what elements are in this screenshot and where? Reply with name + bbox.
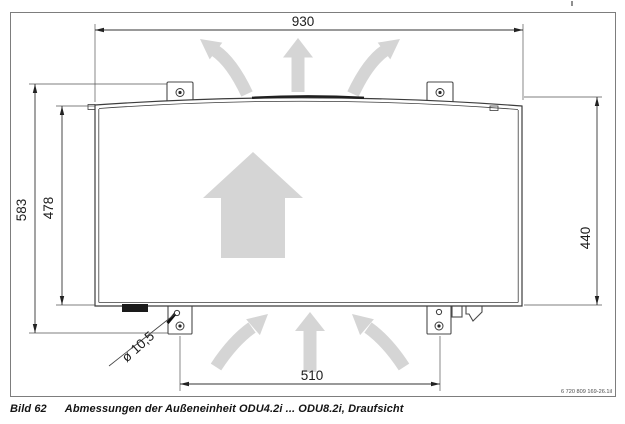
drawing-reference-number: 6 720 809 169-26.1il [561,389,612,395]
dimension-hole-diameter: ø 10,5 [109,314,175,366]
airflow-arrow-curve-right-icon [216,314,268,367]
figure-label: Bild 62 [10,403,47,415]
dimension-width-overall: 930 [95,14,523,102]
technical-drawing: 930 583 478 440 [0,0,625,400]
dim-depth-body-label: 478 [41,197,56,220]
corner-notch-left [88,105,95,110]
dim-depth-overall-label: 583 [14,199,29,222]
airflow-arrow-up-left-icon [200,39,247,94]
outdoor-unit-body [88,96,522,312]
screw-icon [436,89,444,97]
dim-width-overall-label: 930 [292,14,315,29]
figure-caption: Abmessungen der Außeneinheit ODU4.2i ...… [65,403,404,415]
screw-icon [176,89,184,97]
dim-depth-right-label: 440 [578,227,593,250]
bent-tab [466,305,482,321]
dimension-depth-body: 478 [41,106,95,305]
airflow-arrow-up-bottom-icon [295,312,325,372]
dimension-depth-right: 440 [524,97,602,305]
dim-foot-hole-spacing-label: 510 [301,368,324,383]
airflow-arrows-bottom [216,312,404,372]
side-tab [452,305,462,317]
screw-icon [176,322,184,330]
airflow-arrow-up-right-icon [353,39,400,94]
airflow-arrows-top [200,38,400,94]
mounting-hole [436,309,441,314]
airflow-arrow-up-icon [283,38,313,92]
manual-page: 930 583 478 440 [0,0,625,424]
connection-marker [122,304,148,312]
airflow-arrow-curve-left-icon [352,314,404,367]
figure-caption-row: Bild 62 Abmessungen der Außeneinheit ODU… [10,403,616,415]
screw-icon [435,322,443,330]
dim-hole-diameter-label: ø 10,5 [119,328,157,365]
